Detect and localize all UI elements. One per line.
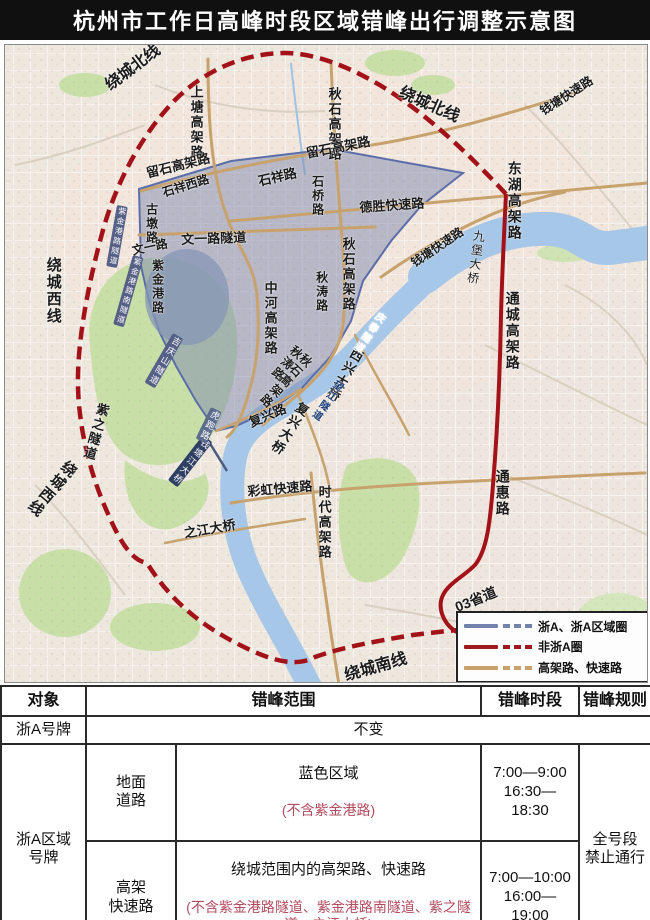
map-road-label: 紫之隧道 [80, 401, 110, 462]
legend-row: 高架路、快速路 [464, 659, 641, 676]
map-road-label: 秋石高架路 [341, 237, 355, 312]
map-road-label: 钱塘快速路 [409, 225, 466, 269]
map-road-label: 时代高架路 [317, 485, 331, 560]
map-road-label: 紫金港路南隧道 [113, 255, 143, 327]
page-title: 杭州市工作日高峰时段区域错峰出行调整示意图 [73, 4, 577, 36]
legend-dashed-line-swatch [503, 645, 533, 649]
map-road-label: 上塘高架路 [189, 85, 203, 160]
row-zhea: 浙A号牌 不变 [1, 716, 650, 744]
map-road-label: 绕城北线 [103, 44, 164, 94]
roadtype-ground: 地面 道路 [86, 744, 176, 841]
map-legend: 浙A、浙A区域圈非浙A圈高架路、快速路 [456, 611, 648, 683]
plate-zhea-region: 浙A区域 号牌 [1, 744, 86, 920]
map-road-label: 绕城北线 [396, 85, 461, 126]
time-zhea-region-ground: 7:00—9:00 16:30—18:30 [481, 744, 579, 841]
legend-dashed-line-swatch [503, 666, 533, 670]
map-road-label: 之江大桥 [183, 518, 237, 540]
map-labels-layer: 绕城北线绕城北线绕城西线绕城西线绕城南线上塘高架路秋石高架路留石高架路留石高架路… [5, 45, 647, 682]
map-road-label: 彩虹快速路 [247, 479, 313, 498]
legend-label: 非浙A圈 [538, 638, 583, 655]
map-road-label: 紫金港路隧道 [106, 205, 127, 268]
map-road-label: 庆春隧道 [349, 309, 385, 354]
time-zhea-region-elevated: 7:00—10:00 16:00—19:00 [481, 841, 579, 920]
map-road-label: 石桥路 [311, 175, 324, 217]
map-road-label: 钱塘快速路 [538, 74, 595, 117]
col-header-object: 对象 [1, 686, 86, 716]
map-road-label: 绕城西线 [23, 457, 79, 519]
map-road-label: 紫金港路 [151, 259, 164, 315]
map-road-label: 石祥路 [257, 166, 298, 188]
legend-label: 浙A、浙A区域圈 [538, 618, 627, 635]
map-road-label: 绕城西线 [45, 257, 61, 325]
scope-zhea-region-ground: 蓝色区域 (不含紫金港路) [176, 744, 481, 841]
policy-table: 对象 错峰范围 错峰时段 错峰规则 浙A号牌 不变 浙A区域 号牌 地面 道路 … [0, 685, 650, 920]
map-road-label: 秋涛路 [315, 271, 328, 313]
col-header-rule: 错峰规则 [579, 686, 650, 716]
legend-solid-line-swatch [464, 645, 498, 649]
col-header-time: 错峰时段 [481, 686, 579, 716]
table-header-row: 对象 错峰范围 错峰时段 错峰规则 [1, 686, 650, 716]
map-road-label: 吉庆山隧道 [145, 333, 184, 388]
row-zhea-region-elevated: 高架 快速路 绕城范围内的高架路、快速路 (不含紫金港路隧道、紫金港路南隧道、紫… [1, 841, 650, 920]
scope-note: (不含紫金港路隧道、紫金港路南隧道、紫之隧道、之江大桥) [180, 899, 477, 920]
row-zhea-region-ground: 浙A区域 号牌 地面 道路 蓝色区域 (不含紫金港路) 7:00—9:00 16… [1, 744, 650, 841]
map-panel: 绕城北线绕城北线绕城西线绕城西线绕城南线上塘高架路秋石高架路留石高架路留石高架路… [0, 40, 650, 685]
map-road-label: 石祥西路 [161, 173, 211, 199]
rule-zhea-region: 全号段 禁止通行 [579, 744, 650, 920]
scope-zhea: 不变 [86, 716, 650, 744]
map-canvas: 绕城北线绕城北线绕城西线绕城西线绕城南线上塘高架路秋石高架路留石高架路留石高架路… [4, 44, 648, 683]
legend-row: 浙A、浙A区域圈 [464, 618, 641, 635]
roadtype-elevated: 高架 快速路 [86, 841, 176, 920]
legend-solid-line-swatch [464, 666, 498, 670]
map-road-label: 绕城南线 [343, 651, 409, 683]
map-road-label: 九堡大桥 [465, 229, 485, 286]
legend-dashed-line-swatch [503, 624, 533, 628]
map-road-label: 文一路 [131, 238, 169, 258]
plate-zhea: 浙A号牌 [1, 716, 86, 744]
scope-zhea-region-elevated: 绕城范围内的高架路、快速路 (不含紫金港路隧道、紫金港路南隧道、紫之隧道、之江大… [176, 841, 481, 920]
map-road-label: 德胜快速路 [359, 196, 425, 214]
page: 杭州市工作日高峰时段区域错峰出行调整示意图 [0, 0, 650, 920]
map-road-label: 文一路隧道 [181, 231, 246, 247]
map-road-label: 通城高架路 [505, 291, 520, 371]
legend-label: 高架路、快速路 [538, 659, 622, 676]
title-bar: 杭州市工作日高峰时段区域错峰出行调整示意图 [0, 0, 650, 40]
legend-row: 非浙A圈 [464, 638, 641, 655]
map-road-label: 通惠路 [495, 469, 510, 517]
scope-text: 蓝色区域 [180, 765, 477, 784]
map-road-label: 中河高架路 [263, 281, 277, 356]
col-header-scope: 错峰范围 [86, 686, 481, 716]
legend-solid-line-swatch [464, 624, 498, 628]
map-road-label: 东湖高架路 [507, 161, 522, 241]
scope-text: 绕城范围内的高架路、快速路 [180, 861, 477, 880]
scope-note: (不含紫金港路) [180, 802, 477, 820]
map-road-label: 虎跑路 [196, 407, 222, 444]
